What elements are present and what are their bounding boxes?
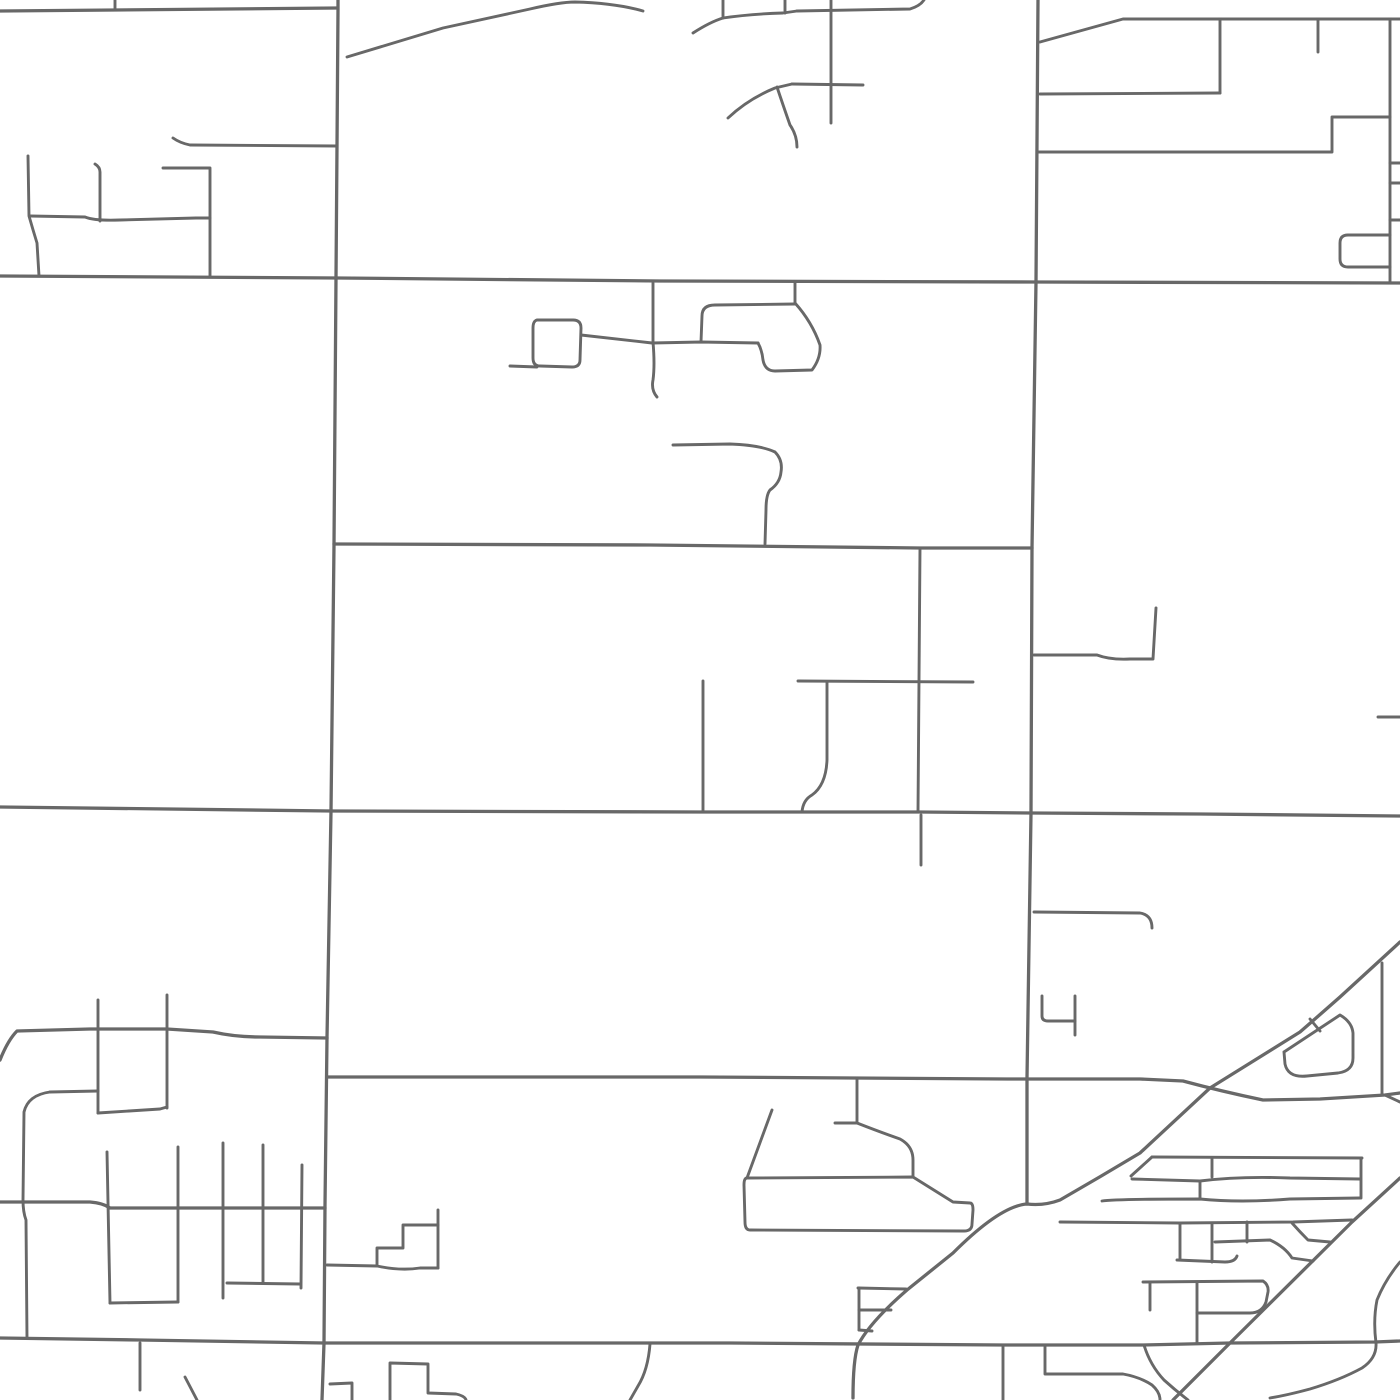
road-arterial-north <box>0 8 337 11</box>
road-s-diag-185 <box>185 1377 197 1400</box>
road-s-lane-352 <box>330 1383 352 1400</box>
road-mid-stub-366 <box>510 366 537 367</box>
road-se-street-1260 <box>1177 1256 1237 1262</box>
road-c-squiggle-827 <box>802 682 827 812</box>
road-boot-antenna <box>747 1110 772 1178</box>
road-comb-u-bottom <box>110 1302 178 1303</box>
road-ne-horiz-94 <box>1040 93 1220 94</box>
road-se-street-1242 <box>1215 1240 1313 1261</box>
road-se-p-block <box>1143 1281 1268 1313</box>
road-n-cross-horiz <box>792 84 863 85</box>
road-sw-loop-west <box>23 1092 50 1338</box>
road-road-1205-west <box>0 1202 325 1208</box>
road-nw-lane-vert-b <box>95 164 100 221</box>
road-mid-link-342 <box>581 335 758 343</box>
road-e-cup-left <box>1042 996 1075 1021</box>
road-s-diag-640 <box>630 1344 650 1400</box>
road-steps-risers <box>377 1225 438 1265</box>
road-mid-vert-653 <box>653 283 658 397</box>
road-road-1077-fork <box>1385 1095 1400 1102</box>
road-se-row-3 <box>1102 1198 1360 1201</box>
road-arterial-lower <box>0 807 1400 816</box>
road-comb-vert-5 <box>301 1165 302 1288</box>
road-ne-zigzag-152 <box>1038 117 1390 152</box>
road-s-lane-1374 <box>1045 1374 1160 1400</box>
road-comb-connector <box>227 1283 300 1284</box>
map-canvas[interactable] <box>0 0 1400 1400</box>
map-container <box>0 0 1400 1400</box>
road-ne-loop-rect <box>1340 235 1390 267</box>
road-c-hook-655 <box>1034 608 1156 659</box>
road-n-top-lane <box>797 0 924 11</box>
road-mid-handle-lane <box>673 444 781 544</box>
road-e-hook-912 <box>1034 912 1152 928</box>
road-n-wavy-lane <box>693 11 797 33</box>
road-se-zig-street <box>1292 1223 1330 1242</box>
road-boot-block <box>744 1177 973 1231</box>
road-se-pentagon <box>1284 1015 1353 1076</box>
road-s-block-390 <box>390 1363 466 1400</box>
road-mid-hook-arm <box>701 304 795 342</box>
road-boot-curve <box>857 1123 913 1177</box>
road-c-vert-920 <box>918 548 920 812</box>
road-mid-blob-loop <box>758 303 820 371</box>
road-sw-horiz-1090 <box>50 1091 98 1092</box>
road-section-vertical-west <box>322 0 338 1400</box>
road-n-diagonal-lane <box>347 2 643 57</box>
road-nw-bracket <box>163 168 210 277</box>
road-sw-u-connector <box>98 1107 167 1113</box>
road-nw-lane-horiz <box>30 216 210 220</box>
road-road-mid-545 <box>334 544 1032 548</box>
road-arterial-south <box>0 1338 1400 1345</box>
road-c-horiz-682 <box>798 681 973 682</box>
road-mid-rounded-square <box>533 320 581 367</box>
road-se-row-left-close <box>1131 1157 1152 1176</box>
road-tri-block-bottom <box>859 1330 872 1331</box>
road-diagonal-rail-main <box>853 942 1400 1398</box>
road-steps-base <box>327 1265 438 1269</box>
road-comb-vert-1 <box>107 1152 110 1303</box>
road-tri-block-top <box>858 1288 906 1289</box>
road-road-1077-cross <box>328 1077 1400 1100</box>
road-n-squiggle-branch <box>777 87 797 147</box>
road-nw-road-146 <box>173 138 337 146</box>
road-se-row-2 <box>1132 1177 1360 1181</box>
road-section-vertical-east <box>1027 0 1038 1204</box>
road-se-row-1 <box>1152 1157 1362 1158</box>
road-road-1030-west <box>0 1029 327 1060</box>
road-se-street-1222 <box>1060 1220 1352 1223</box>
